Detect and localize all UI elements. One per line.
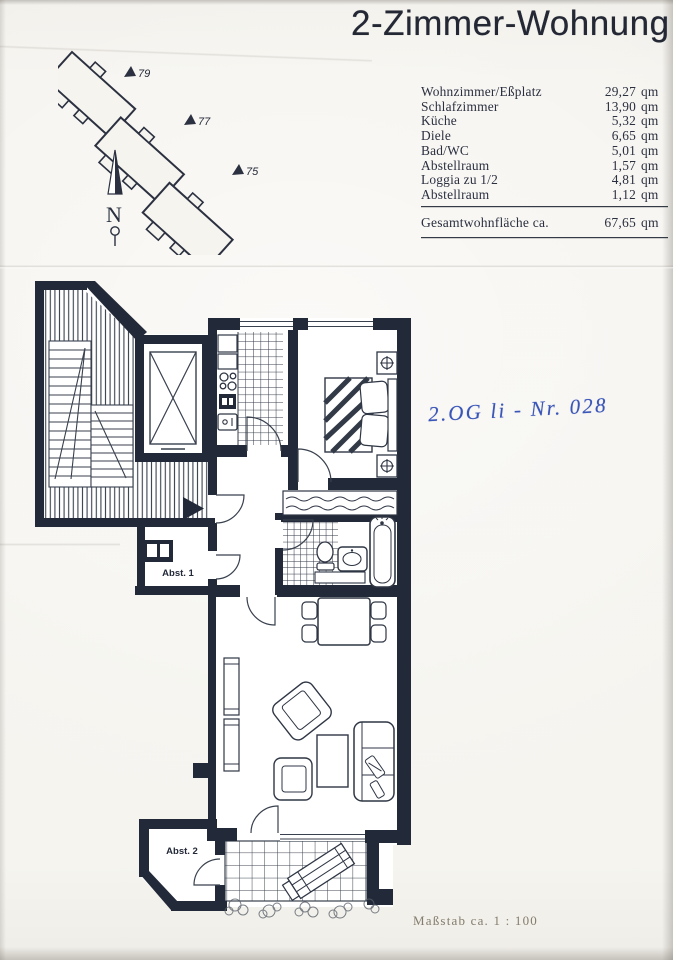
area-row-unit: qm <box>636 173 668 188</box>
bath-cabinet <box>315 572 365 583</box>
kitchen-sink-icon <box>218 414 237 430</box>
area-table-rows: Wohnzimmer/Eßplatz29,27qmSchlafzimmer13,… <box>421 85 668 203</box>
table-rule <box>421 237 668 238</box>
area-row-lbl: Loggia zu 1/2 <box>421 173 586 188</box>
bath-sink-icon <box>338 547 367 571</box>
area-row: Loggia zu 1/24,81qm <box>421 173 668 188</box>
bedroom-window <box>308 318 373 330</box>
pillow <box>360 381 390 414</box>
house-number-marker-79: 79 <box>124 66 150 80</box>
handwritten-note: 2.OG li - Nr. 028 <box>428 390 669 428</box>
nightstand <box>377 455 397 477</box>
area-row-unit: qm <box>636 159 668 174</box>
total-unit: qm <box>636 215 668 230</box>
bookshelf <box>224 658 239 771</box>
headboard <box>388 379 397 451</box>
house-number-marker-75: 75 <box>232 164 259 178</box>
bathtub-icon <box>370 516 395 587</box>
marker-triangle-icon <box>184 114 196 125</box>
kitchen-tiles <box>238 332 283 445</box>
storage1-label: Abst. 1 <box>162 568 194 579</box>
sofa <box>354 722 394 801</box>
area-row: Abstellraum1,12qm <box>421 188 668 203</box>
pillow <box>360 414 390 447</box>
armchair <box>274 758 312 800</box>
house-number: 79 <box>138 68 150 80</box>
total-label: Gesamtwohnfläche ca. <box>421 215 586 230</box>
area-row-unit: qm <box>636 100 668 115</box>
area-row: Diele6,65qm <box>421 129 668 144</box>
paper-crease <box>0 265 673 269</box>
meter-box <box>143 540 173 562</box>
hall-wardrobe <box>283 491 397 515</box>
area-row-val: 1,57 <box>586 159 636 174</box>
area-row: Bad/WC5,01qm <box>421 144 668 159</box>
area-row: Wohnzimmer/Eßplatz29,27qm <box>421 85 668 100</box>
area-row: Küche5,32qm <box>421 114 668 129</box>
area-row-lbl: Wohnzimmer/Eßplatz <box>421 85 586 100</box>
area-row-lbl: Diele <box>421 129 586 144</box>
marker-triangle-icon <box>124 66 136 77</box>
storage2-label: Abst. 2 <box>166 846 198 857</box>
paper-edge-left <box>0 0 6 960</box>
kitchen-cabinet <box>218 335 237 352</box>
area-row-unit: qm <box>636 144 668 159</box>
area-row-unit: qm <box>636 129 668 144</box>
area-row-lbl: Bad/WC <box>421 144 586 159</box>
kitchen-window <box>240 318 293 330</box>
house-number: 75 <box>246 166 259 178</box>
area-row-lbl: Abstellraum <box>421 159 586 174</box>
nightstand <box>377 352 397 374</box>
area-row-lbl: Schlafzimmer <box>421 100 586 115</box>
area-row-val: 13,90 <box>586 100 636 115</box>
page-title: 2-Zimmer-Wohnung <box>351 4 671 44</box>
dining-chair <box>371 602 386 619</box>
area-row-val: 4,81 <box>586 173 636 188</box>
floor-plan: Abst. 1 Abst. 2 <box>25 273 425 923</box>
dining-chair <box>302 602 317 619</box>
area-row-lbl: Abstellraum <box>421 188 586 203</box>
area-row-val: 6,65 <box>586 129 636 144</box>
north-label: N <box>106 202 122 227</box>
area-row-val: 5,01 <box>586 144 636 159</box>
loggia-window <box>280 832 365 841</box>
area-row-unit: qm <box>636 188 668 203</box>
area-row: Abstellraum1,57qm <box>421 159 668 174</box>
oven-icon <box>219 394 236 409</box>
site-plan-buildings <box>58 50 259 255</box>
area-row-unit: qm <box>636 114 668 129</box>
marker-triangle-icon <box>232 164 244 175</box>
kitchen-cabinet <box>218 354 237 369</box>
paper-edge-bottom <box>0 947 673 960</box>
area-row-unit: qm <box>636 85 668 100</box>
elevator <box>135 335 211 462</box>
dining-chair <box>371 625 386 642</box>
scale-note: Maßstab ca. 1 : 100 <box>413 913 538 929</box>
dining-chair <box>302 625 317 642</box>
house-number-marker-77: 77 <box>184 114 211 128</box>
area-total-row: Gesamtwohnfläche ca. 67,65 qm <box>421 207 668 234</box>
site-plan: 79 77 75 N <box>58 50 283 255</box>
area-row-lbl: Küche <box>421 114 586 129</box>
area-row: Schlafzimmer13,90qm <box>421 100 668 115</box>
dining-table <box>318 598 370 645</box>
total-value: 67,65 <box>586 215 636 230</box>
house-number: 77 <box>198 116 211 128</box>
area-table: Wohnzimmer/Eßplatz29,27qmSchlafzimmer13,… <box>421 85 668 238</box>
area-row-val: 5,32 <box>586 114 636 129</box>
coffee-table <box>317 735 348 787</box>
toilet-icon <box>317 542 334 570</box>
area-row-val: 1,12 <box>586 188 636 203</box>
scanned-floor-plan-page: 2-Zimmer-Wohnung Wohnzimmer/Eßplatz29,27… <box>0 0 673 960</box>
area-row-val: 29,27 <box>586 85 636 100</box>
